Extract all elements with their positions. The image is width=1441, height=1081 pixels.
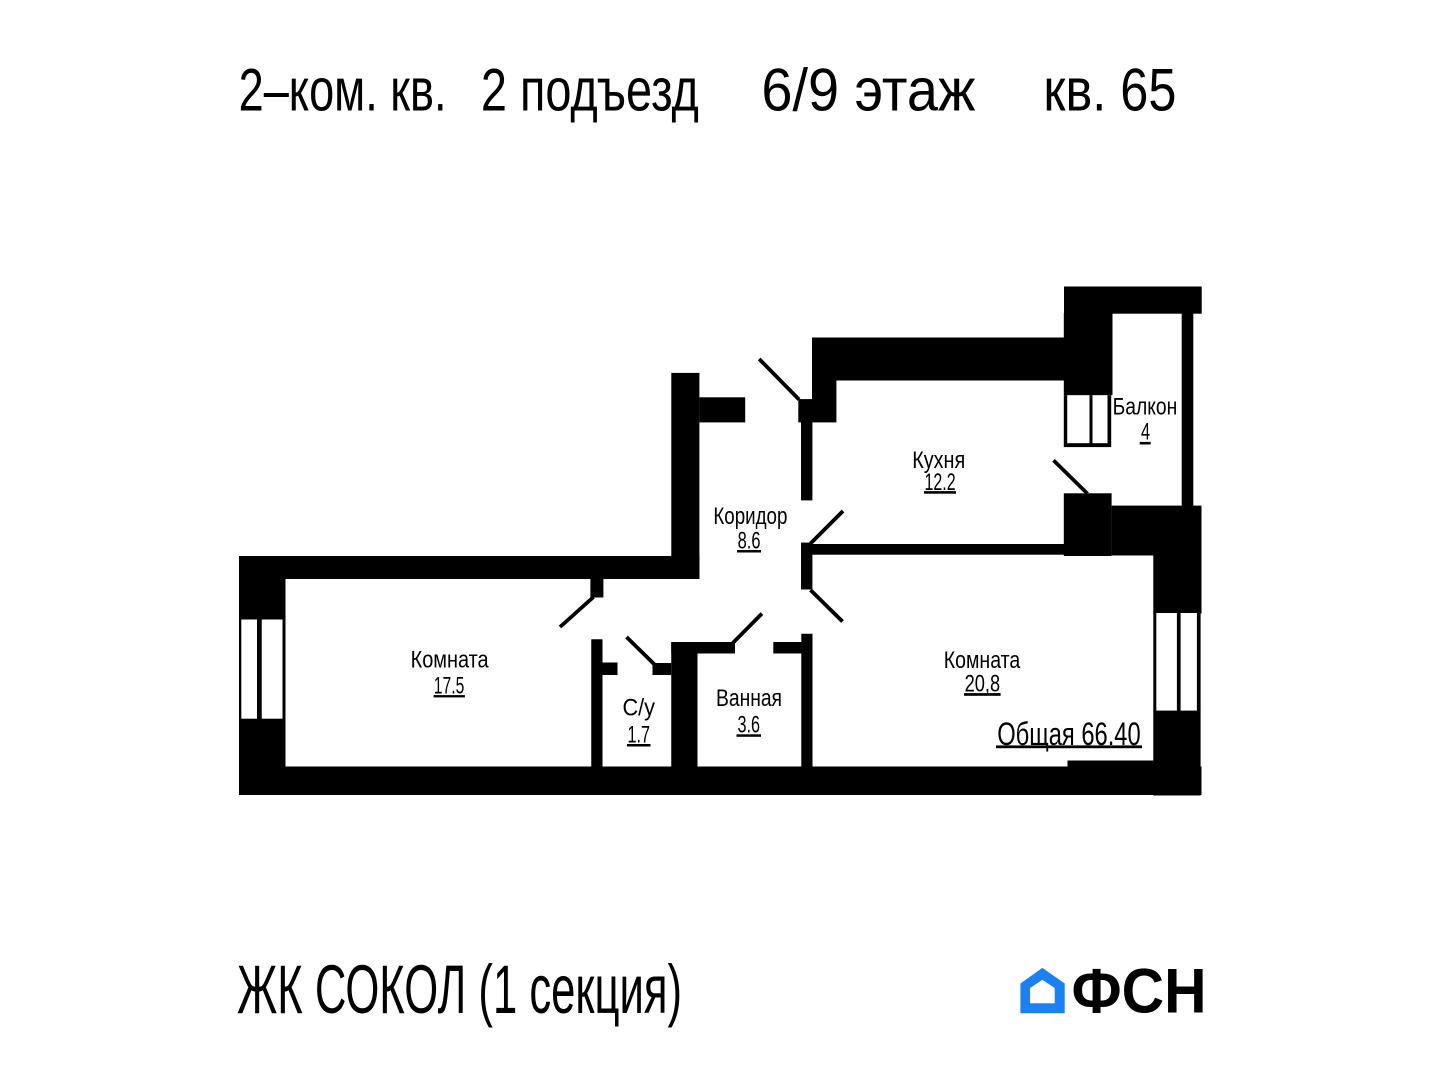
svg-text:6/9 этаж: 6/9 этаж	[761, 56, 975, 124]
svg-text:2 подъезд: 2 подъезд	[481, 56, 699, 124]
svg-text:С/у: С/у	[623, 695, 656, 722]
svg-text:2–ком. кв.: 2–ком. кв.	[239, 56, 447, 124]
svg-text:4: 4	[1141, 418, 1150, 445]
svg-text:Коридор: Коридор	[713, 503, 787, 530]
svg-text:Балкон: Балкон	[1113, 394, 1178, 421]
svg-text:ЖК СОКОЛ (1 секция): ЖК СОКОЛ (1 секция)	[237, 951, 682, 1028]
svg-text:Комната: Комната	[411, 647, 490, 674]
svg-text:кв. 65: кв. 65	[1043, 56, 1176, 124]
svg-text:Ванная: Ванная	[716, 685, 782, 712]
svg-text:ФСН: ФСН	[1072, 956, 1207, 1026]
